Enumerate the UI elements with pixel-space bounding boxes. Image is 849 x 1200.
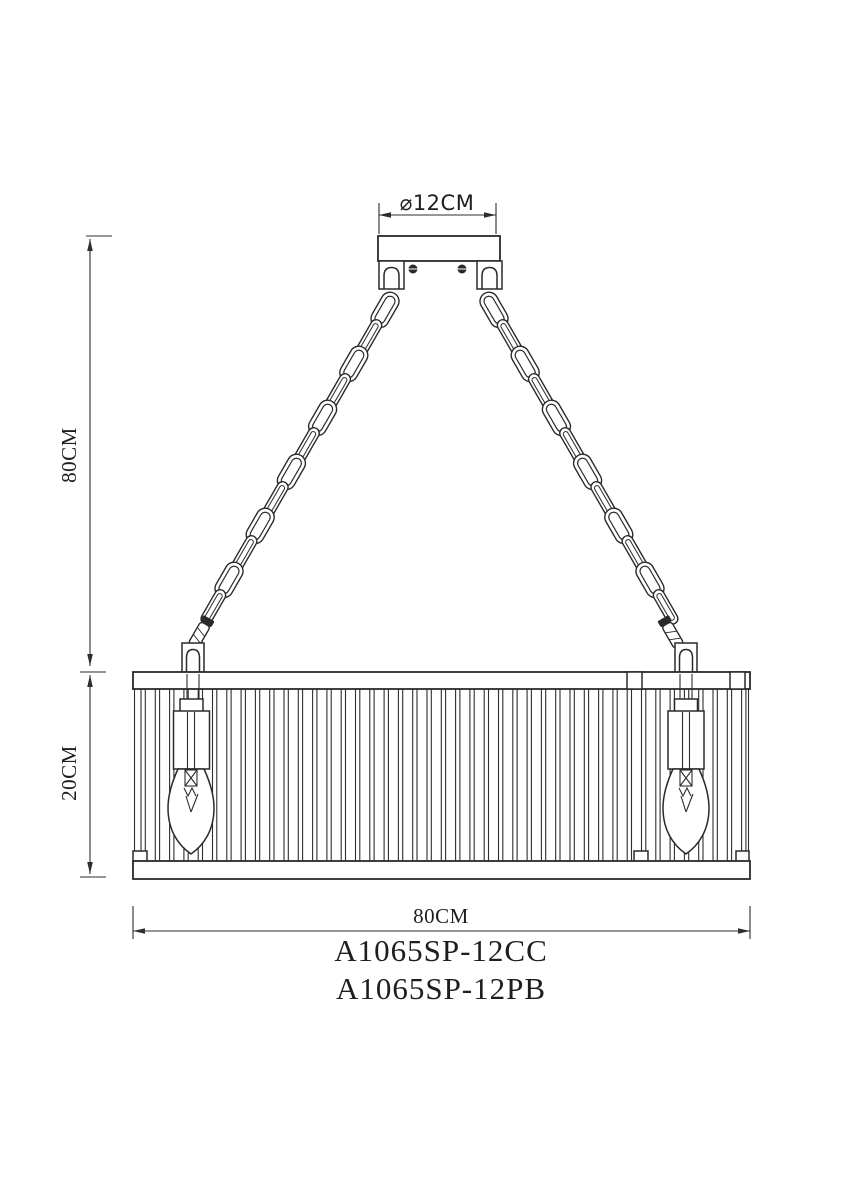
canopy-plate: [378, 236, 500, 261]
shade-crystal-rods: [141, 689, 746, 861]
shade-hanger-left: [182, 643, 204, 674]
candle-sleeve: [668, 711, 704, 769]
candle-sleeve: [174, 711, 210, 769]
shade-top-band: [133, 672, 750, 689]
suspension-height-dimension: 80CM: [57, 236, 112, 672]
socket-collar: [180, 699, 203, 712]
model-number-line2: A1065SP-12PB: [336, 971, 546, 1006]
band-seam: [627, 672, 642, 689]
chain-right: [477, 289, 689, 657]
chandelier-dimension-drawing: ⌀12CM: [0, 0, 849, 1200]
canopy-diameter-dimension: ⌀12CM: [379, 191, 496, 234]
shade-bottom-band: [133, 861, 750, 879]
shade-height-label: 20CM: [57, 745, 81, 801]
canopy-hanger-left: [379, 261, 404, 289]
suspension-height-label: 80CM: [57, 427, 81, 483]
model-number-line1: A1065SP-12CC: [334, 933, 548, 968]
shade-height-dimension: 20CM: [57, 675, 106, 877]
shade-hanger-right: [675, 643, 697, 674]
dimension-arrow-right: [484, 212, 496, 218]
technical-drawing-page: ⌀12CM: [0, 0, 849, 1200]
canopy-hanger-right: [477, 261, 502, 289]
lampshade: [133, 672, 750, 879]
canopy-diameter-label: ⌀12CM: [400, 191, 475, 215]
chain-left: [183, 289, 402, 657]
shade-width-label: 80CM: [413, 904, 469, 928]
socket-collar: [675, 699, 698, 712]
band-seam: [730, 672, 745, 689]
ceiling-canopy: [378, 236, 502, 289]
bulb-left: [168, 674, 214, 854]
dimension-arrow-left: [379, 212, 391, 218]
model-numbers: A1065SP-12CC A1065SP-12PB: [334, 933, 548, 1006]
